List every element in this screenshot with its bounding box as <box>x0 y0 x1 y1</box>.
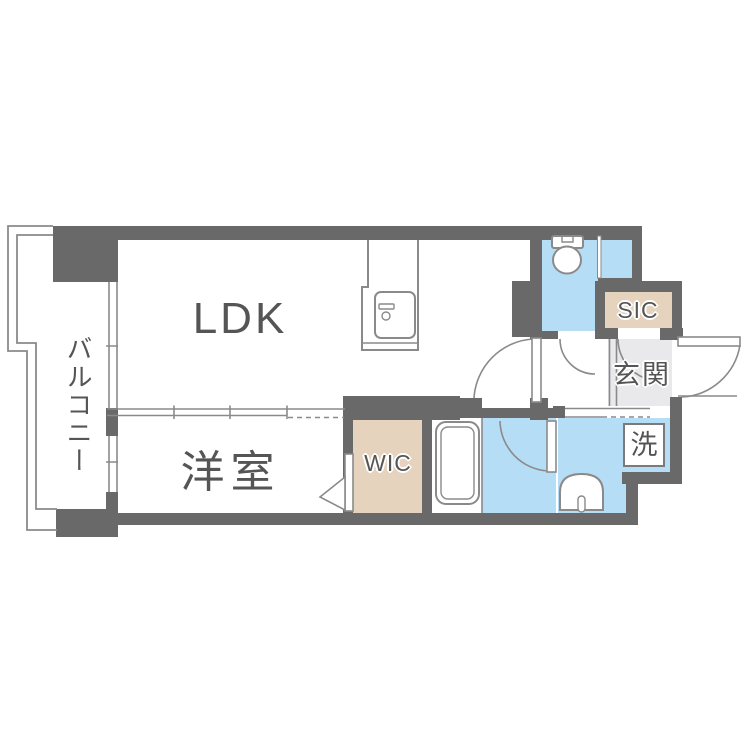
floor-plan: LDK 洋室 バルコニー WIC SIC 玄関 洗 <box>0 0 750 750</box>
balcony-outline <box>8 226 57 530</box>
entrance-door-leaf[interactable] <box>678 337 740 346</box>
kitchen-sink <box>375 292 415 338</box>
toilet-door-swing-arc <box>560 339 595 374</box>
toilet-bowl <box>553 247 581 274</box>
wall-above-vestibule <box>460 408 565 418</box>
window-lower <box>106 436 118 492</box>
wall-block-top-left <box>53 226 118 282</box>
washbasin-faucet-icon <box>578 496 585 512</box>
wall-bottom <box>106 513 638 525</box>
bath-vestibule-door-leaf[interactable] <box>547 421 556 472</box>
sic-label: SIC <box>604 297 672 324</box>
balcony-outer-line <box>8 226 57 530</box>
wall-right-lower <box>670 397 682 484</box>
wall-step-vertical <box>626 484 638 525</box>
ldk-room-label: LDK <box>170 294 310 344</box>
window-upper <box>106 282 118 408</box>
kitchen-faucet-icon <box>379 304 394 309</box>
kitchen-drain-icon <box>382 312 390 320</box>
bath-vestibule-floor <box>482 418 556 513</box>
wall-pillar <box>512 281 538 337</box>
wall-chunk-left <box>106 408 118 436</box>
wall-toilet-right <box>632 226 642 283</box>
balcony-label: バルコニー <box>60 330 97 480</box>
entrance-door-swing-arc <box>682 345 740 397</box>
toilet-room-divider-line <box>598 236 602 278</box>
wall-wic-right <box>422 418 432 513</box>
wall-step <box>622 472 682 484</box>
wic-label: WIC <box>353 450 423 477</box>
ldk-door-leaf[interactable] <box>532 338 541 402</box>
wall-sic-bottom-left <box>595 328 618 339</box>
western-room-label: 洋室 <box>153 436 308 500</box>
toilet-room-floor-right <box>601 236 632 278</box>
laundry-label: 洗 <box>631 430 658 460</box>
wall-sic-top <box>595 281 682 292</box>
washing-machine-space: 洗 <box>623 423 665 467</box>
entrance-label: 玄関 <box>605 353 679 392</box>
wic-door-leaf[interactable] <box>345 454 353 511</box>
bathtub-inner <box>441 427 474 499</box>
balcony-inner-line <box>17 235 57 509</box>
wall-chunk-laundry <box>553 406 565 418</box>
windows <box>106 282 118 492</box>
